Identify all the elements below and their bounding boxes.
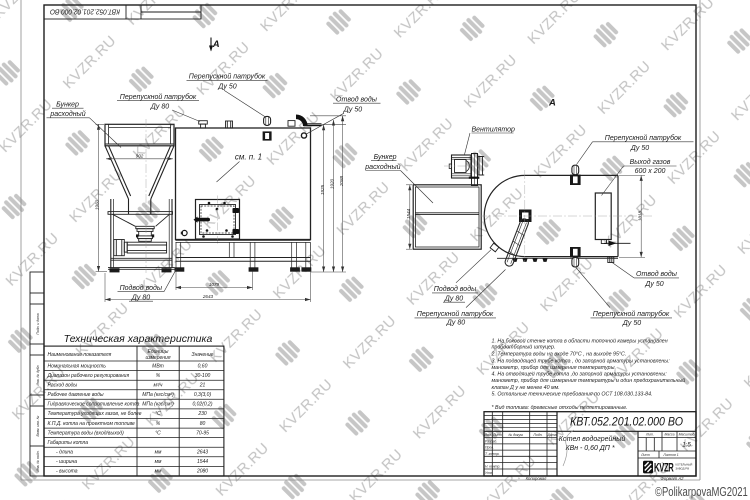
svg-text:Пров.: Пров. <box>485 446 494 450</box>
svg-text:* Вид топлива: древесные отх: * Вид топлива: древесные отходы пеллетир… <box>492 405 628 411</box>
svg-text:манометр, прибор для измерени: манометр, прибор для измерения температу… <box>492 365 616 371</box>
svg-text:Перепускной патрубок: Перепускной патрубок <box>120 93 197 101</box>
svg-text:Перепускной патрубок: Перепускной патрубок <box>605 134 682 142</box>
svg-text:1920: 1920 <box>330 178 335 189</box>
svg-text:Ду 80: Ду 80 <box>446 320 465 327</box>
svg-text:5. Остальные технические треб: 5. Остальные технические требования по О… <box>492 391 653 397</box>
svg-text:Подвод воды: Подвод воды <box>434 285 477 293</box>
svg-text:Значение: Значение <box>192 352 214 358</box>
svg-text:Выход газов: Выход газов <box>630 158 671 166</box>
svg-text:600 х 200: 600 х 200 <box>635 168 666 175</box>
svg-text:2643: 2643 <box>202 294 214 299</box>
svg-text:Ду 80: Ду 80 <box>150 104 169 111</box>
svg-text:1544: 1544 <box>406 208 411 219</box>
svg-text:мм: мм <box>155 459 162 465</box>
svg-text:МПа (кгс/см²): МПа (кгс/см²) <box>142 402 174 408</box>
svg-text:Наименование показателя: Наименование показателя <box>48 352 112 358</box>
svg-text:2. Температура воды на входе: 2. Температура воды на входе 70°С , на в… <box>491 351 627 357</box>
svg-text:Расход воды: Расход воды <box>48 383 78 389</box>
svg-text:Лист: Лист <box>492 433 502 437</box>
svg-text:Габариты котла: Габариты котла <box>48 440 89 446</box>
svg-text:70-95: 70-95 <box>196 430 209 436</box>
svg-text:1018: 1018 <box>637 210 642 221</box>
svg-text:Взам. инв. №: Взам. инв. № <box>36 415 40 436</box>
svg-text:- длина: - длина <box>56 450 73 456</box>
svg-text:Инв. № дубл.: Инв. № дубл. <box>36 365 40 386</box>
svg-text:1925: 1925 <box>320 184 325 195</box>
svg-text:пробоотборный штуцер.: пробоотборный штуцер. <box>492 344 556 351</box>
svg-text:Масштаб: Масштаб <box>679 433 695 437</box>
svg-text:Формат А2: Формат А2 <box>661 476 685 481</box>
svg-text:Подп.: Подп. <box>533 433 542 437</box>
svg-text:Ду 50: Ду 50 <box>217 84 236 91</box>
svg-text:МВт: МВт <box>152 363 164 369</box>
svg-text:°С: °С <box>155 411 161 417</box>
svg-text:Дата: Дата <box>547 433 557 437</box>
svg-text:Копировал: Копировал <box>526 476 547 481</box>
svg-text:- ширина: - ширина <box>56 459 77 465</box>
svg-text:м³/ч: м³/ч <box>153 383 162 389</box>
svg-text:Лист: Лист <box>640 453 650 457</box>
svg-text:1544: 1544 <box>197 459 208 465</box>
svg-text:манометр, прибор для измерени: манометр, прибор для измерения температу… <box>492 377 686 384</box>
svg-text:Вентилятор: Вентилятор <box>472 126 515 133</box>
svg-text:расходный: расходный <box>364 163 400 171</box>
svg-text:©PolikarpovaMG2021: ©PolikarpovaMG2021 <box>655 484 748 499</box>
svg-text:0,3(3,0): 0,3(3,0) <box>194 392 212 398</box>
svg-text:2088: 2088 <box>339 175 344 187</box>
svg-text:%: % <box>156 421 161 427</box>
svg-text:Утв.: Утв. <box>485 471 493 475</box>
svg-text:А: А <box>212 39 220 50</box>
svg-text:Бункер: Бункер <box>56 102 79 109</box>
svg-text:230: 230 <box>197 411 207 417</box>
svg-text:902: 902 <box>136 153 144 158</box>
svg-text:0,02(0,2): 0,02(0,2) <box>192 402 212 408</box>
svg-text:А: А <box>548 97 556 108</box>
svg-text:КВТ.052.201.02.000 ВО: КВТ.052.201.02.000 ВО <box>50 7 120 16</box>
svg-text:Температура воды (вход/выход): Температура воды (вход/выход) <box>48 430 125 436</box>
svg-text:МПа (кгс/см²): МПа (кгс/см²) <box>142 392 174 398</box>
svg-text:см. п. 1: см. п. 1 <box>235 152 262 161</box>
svg-text:1960: 1960 <box>94 199 99 210</box>
svg-text:Листов 1: Листов 1 <box>662 453 678 457</box>
svg-text:Н. контр.: Н. контр. <box>485 465 500 469</box>
svg-text:КВТ.052.201.02.000 ВО: КВТ.052.201.02.000 ВО <box>570 415 683 429</box>
svg-text:30-100: 30-100 <box>195 373 211 379</box>
svg-text:Техническая характеристика: Техническая характеристика <box>64 333 213 345</box>
svg-text:Ду 50: Ду 50 <box>343 107 362 114</box>
svg-text:Т. контр.: Т. контр. <box>485 452 500 456</box>
svg-text:Ду 80: Ду 80 <box>131 295 150 302</box>
svg-text:Температура уходящих газов, не: Температура уходящих газов, не более <box>48 411 142 417</box>
svg-text:мм: мм <box>155 450 162 456</box>
svg-text:Изм.: Изм. <box>484 433 491 437</box>
svg-text:Перепускной патрубок: Перепускной патрубок <box>189 73 266 81</box>
svg-text:Отвод воды: Отвод воды <box>636 270 678 278</box>
svg-text:0,60: 0,60 <box>198 363 208 369</box>
svg-text:Подвод воды: Подвод воды <box>120 284 163 292</box>
svg-text:Рабочее давление воды: Рабочее давление воды <box>48 392 104 398</box>
svg-text:°С: °С <box>155 430 161 436</box>
svg-text:1079: 1079 <box>209 282 220 287</box>
svg-text:Ду 50: Ду 50 <box>622 320 641 327</box>
svg-text:Ду 50: Ду 50 <box>630 145 649 152</box>
svg-text:ЗАВОД РФ: ЗАВОД РФ <box>676 466 690 470</box>
svg-text:Ду 50: Ду 50 <box>644 281 663 288</box>
svg-text:%: % <box>156 373 161 379</box>
svg-text:расходный: расходный <box>49 110 85 118</box>
svg-text:Отвод воды: Отвод воды <box>336 96 378 104</box>
svg-text:KVZR: KVZR <box>654 461 674 475</box>
svg-text:КВн - 0,60 ДП *: КВн - 0,60 ДП * <box>565 445 614 452</box>
svg-text:Перепускной патрубок: Перепускной патрубок <box>417 310 494 318</box>
svg-text:мм: мм <box>155 469 162 475</box>
svg-text:2080: 2080 <box>196 469 208 475</box>
svg-text:Гидравлическое сопротивление к: Гидравлическое сопротивление котла <box>48 402 140 408</box>
svg-text:3. На подводящей трубе котла: 3. На подводящей трубе котла , до запорн… <box>492 357 671 364</box>
svg-text:- высота: - высота <box>56 469 78 475</box>
svg-text:Перепускной патрубок: Перепускной патрубок <box>593 310 670 318</box>
svg-text:1. На боковой стенке котла в: 1. На боковой стенке котла в области топ… <box>492 338 668 345</box>
svg-text:Разраб.: Разраб. <box>485 439 497 443</box>
svg-text:К.П.Д. котла на проектном топл: К.П.Д. котла на проектном топливе <box>48 421 136 427</box>
svg-text:4. На отводящей трубе котла ,: 4. На отводящей трубе котла ,до запорной… <box>492 371 668 378</box>
svg-text:2643: 2643 <box>196 450 208 456</box>
svg-text:21: 21 <box>199 383 206 389</box>
svg-text:Подп. и дата: Подп. и дата <box>36 313 40 334</box>
svg-text:Номинальная мощность: Номинальная мощность <box>48 363 107 369</box>
svg-text:Диапазон рабочего регулировани: Диапазон рабочего регулирования <box>47 373 130 379</box>
svg-text:1:5: 1:5 <box>682 442 691 449</box>
svg-text:Бункер: Бункер <box>374 154 397 161</box>
svg-text:Инв. № подл.: Инв. № подл. <box>36 450 40 471</box>
svg-text:Котел водогрейный: Котел водогрейный <box>559 435 626 443</box>
svg-text:клапан Д у не менее 40 мм.: клапан Д у не менее 40 мм. <box>492 385 560 391</box>
svg-text:№ докум.: № докум. <box>509 433 524 437</box>
svg-text:Единицы: Единицы <box>148 349 169 355</box>
svg-text:КОТЕЛЬНЫЙ: КОТЕЛЬНЫЙ <box>676 462 693 466</box>
svg-text:Ду 80: Ду 80 <box>444 295 463 302</box>
svg-text:измерения: измерения <box>145 355 170 361</box>
svg-text:80: 80 <box>200 421 206 427</box>
svg-text:Масса: Масса <box>664 433 674 437</box>
svg-text:Лит.: Лит. <box>645 433 654 437</box>
